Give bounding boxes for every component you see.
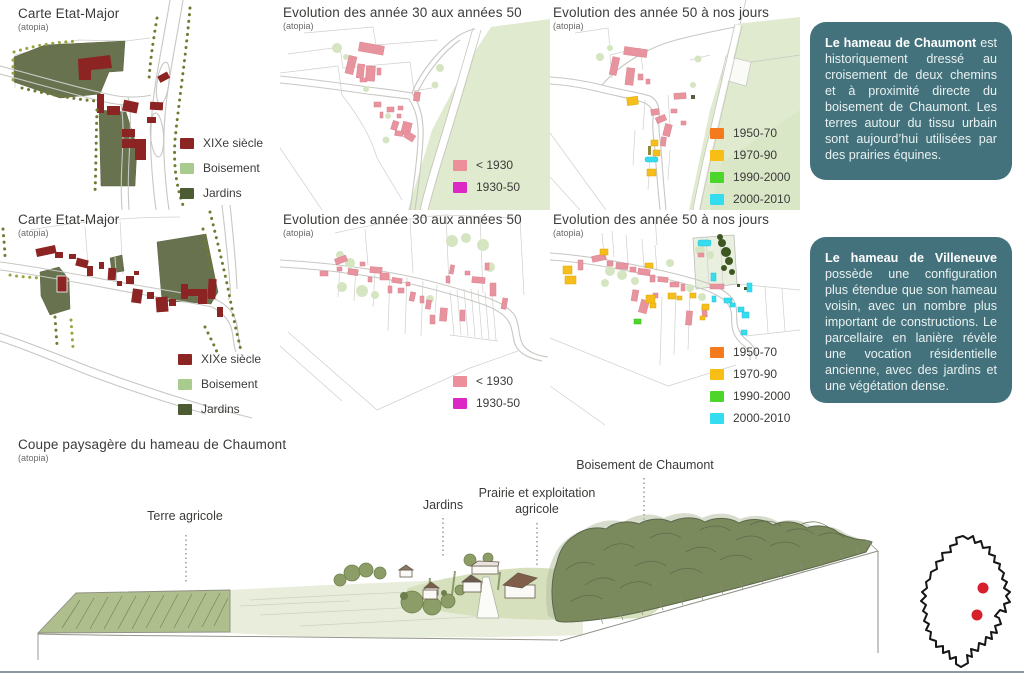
legend-etat-major-chaumont: XIXe siècle Boisement Jardins — [180, 136, 263, 200]
map-title: Carte Etat-Major — [18, 212, 119, 227]
map-source: (atopia) — [283, 21, 522, 31]
legend-swatch — [710, 194, 724, 205]
legend-item: Jardins — [178, 402, 261, 416]
legend-swatch — [180, 163, 194, 174]
note-villeneuve: Le hameau de Villeneuve possède une conf… — [810, 237, 1012, 403]
legend-item: < 1930 — [453, 158, 520, 172]
legend-item: XIXe siècle — [180, 136, 263, 150]
legend-item: XIXe siècle — [178, 352, 261, 366]
legend-label: 1970-90 — [733, 367, 777, 381]
legend-swatch — [453, 160, 467, 171]
panel-title-chaumont-evo-30-50: Evolution des année 30 aux années 50 (at… — [283, 5, 522, 31]
legend-item: 1970-90 — [710, 367, 790, 381]
map-source: (atopia) — [553, 21, 769, 31]
legend-label: Jardins — [203, 186, 242, 200]
note-body: possède une configuration plus étendue q… — [825, 267, 997, 393]
legend-swatch — [710, 128, 724, 139]
legend-item: 1950-70 — [710, 345, 790, 359]
map-title: Evolution des année 30 aux années 50 — [283, 212, 522, 227]
map-title: Evolution des année 30 aux années 50 — [283, 5, 522, 20]
panel-title-villeneuve-evo-30-50: Evolution des année 30 aux années 50 (at… — [283, 212, 522, 238]
map-source: (atopia) — [553, 228, 769, 238]
footer-rule — [0, 671, 1024, 673]
legend-item: 1990-2000 — [710, 389, 790, 403]
legend-item: Jardins — [180, 186, 263, 200]
legend-label: 1930-50 — [476, 180, 520, 194]
hamlet-location-dot — [978, 583, 989, 594]
legend-swatch — [710, 369, 724, 380]
legend-label: 2000-2010 — [733, 411, 790, 425]
legend-label: XIXe siècle — [203, 136, 263, 150]
legend-swatch — [180, 188, 194, 199]
legend-label: Boisement — [201, 377, 258, 391]
map-source: (atopia) — [18, 22, 119, 32]
legend-swatch — [453, 376, 467, 387]
legend-label: XIXe siècle — [201, 352, 261, 366]
legend-swatch — [710, 172, 724, 183]
legend-item: < 1930 — [453, 374, 520, 388]
legend-label: 1970-90 — [733, 148, 777, 162]
legend-swatch — [710, 150, 724, 161]
legend-item: 2000-2010 — [710, 192, 790, 206]
legend-label: Jardins — [201, 402, 240, 416]
landscape-analysis-board: Carte Etat-Major (atopia) XIXe siècle Bo… — [0, 0, 1024, 678]
legend-swatch — [710, 413, 724, 424]
legend-label: 1990-2000 — [733, 170, 790, 184]
legend-evo-30-50-villeneuve: < 1930 1930-50 — [453, 374, 520, 410]
map-title: Carte Etat-Major — [18, 6, 119, 21]
legend-item: 1970-90 — [710, 148, 790, 162]
legend-evo-50-jours-villeneuve: 1950-70 1970-90 1990-2000 2000-2010 — [710, 345, 790, 425]
legend-item: 1930-50 — [453, 396, 520, 410]
legend-item: 2000-2010 — [710, 411, 790, 425]
note-chaumont: Le hameau de Chaumont est historiquement… — [810, 22, 1012, 180]
legend-item: 1930-50 — [453, 180, 520, 194]
map-title: Evolution des année 50 à nos jours — [553, 5, 769, 20]
legend-item: 1950-70 — [710, 126, 790, 140]
legend-label: Boisement — [203, 161, 260, 175]
legend-label: 2000-2010 — [733, 192, 790, 206]
legend-evo-50-jours-chaumont: 1950-70 1970-90 1990-2000 2000-2010 — [710, 126, 790, 206]
panel-title-villeneuve-etat-major: Carte Etat-Major (atopia) — [18, 212, 119, 238]
legend-etat-major-villeneuve: XIXe siècle Boisement Jardins — [178, 352, 261, 416]
legend-item: Boisement — [178, 377, 261, 391]
legend-label: < 1930 — [476, 158, 513, 172]
panel-title-chaumont-evo-50-jours: Evolution des année 50 à nos jours (atop… — [553, 5, 769, 31]
legend-label: 1950-70 — [733, 126, 777, 140]
note-lead: Le hameau de Villeneuve — [825, 251, 997, 265]
legend-label: 1990-2000 — [733, 389, 790, 403]
commune-outline-map — [903, 522, 1021, 674]
map-source: (atopia) — [283, 228, 522, 238]
hamlet-location-dot — [972, 610, 983, 621]
map-source: (atopia) — [18, 228, 119, 238]
legend-swatch — [178, 404, 192, 415]
legend-label: 1930-50 — [476, 396, 520, 410]
legend-swatch — [178, 354, 192, 365]
map-title: Evolution des année 50 à nos jours — [553, 212, 769, 227]
landscape-cross-section — [0, 430, 1024, 678]
panel-title-chaumont-etat-major: Carte Etat-Major (atopia) — [18, 6, 119, 32]
legend-label: < 1930 — [476, 374, 513, 388]
legend-item: 1990-2000 — [710, 170, 790, 184]
legend-label: 1950-70 — [733, 345, 777, 359]
legend-item: Boisement — [180, 161, 263, 175]
legend-swatch — [710, 347, 724, 358]
legend-swatch — [178, 379, 192, 390]
panel-title-villeneuve-evo-50-jours: Evolution des année 50 à nos jours (atop… — [553, 212, 769, 238]
legend-swatch — [453, 398, 467, 409]
legend-swatch — [710, 391, 724, 402]
note-lead: Le hameau de Chaumont — [825, 36, 976, 50]
legend-evo-30-50-chaumont: < 1930 1930-50 — [453, 158, 520, 194]
note-body: est historiquement dressé au croisement … — [825, 36, 997, 162]
legend-swatch — [453, 182, 467, 193]
legend-swatch — [180, 138, 194, 149]
